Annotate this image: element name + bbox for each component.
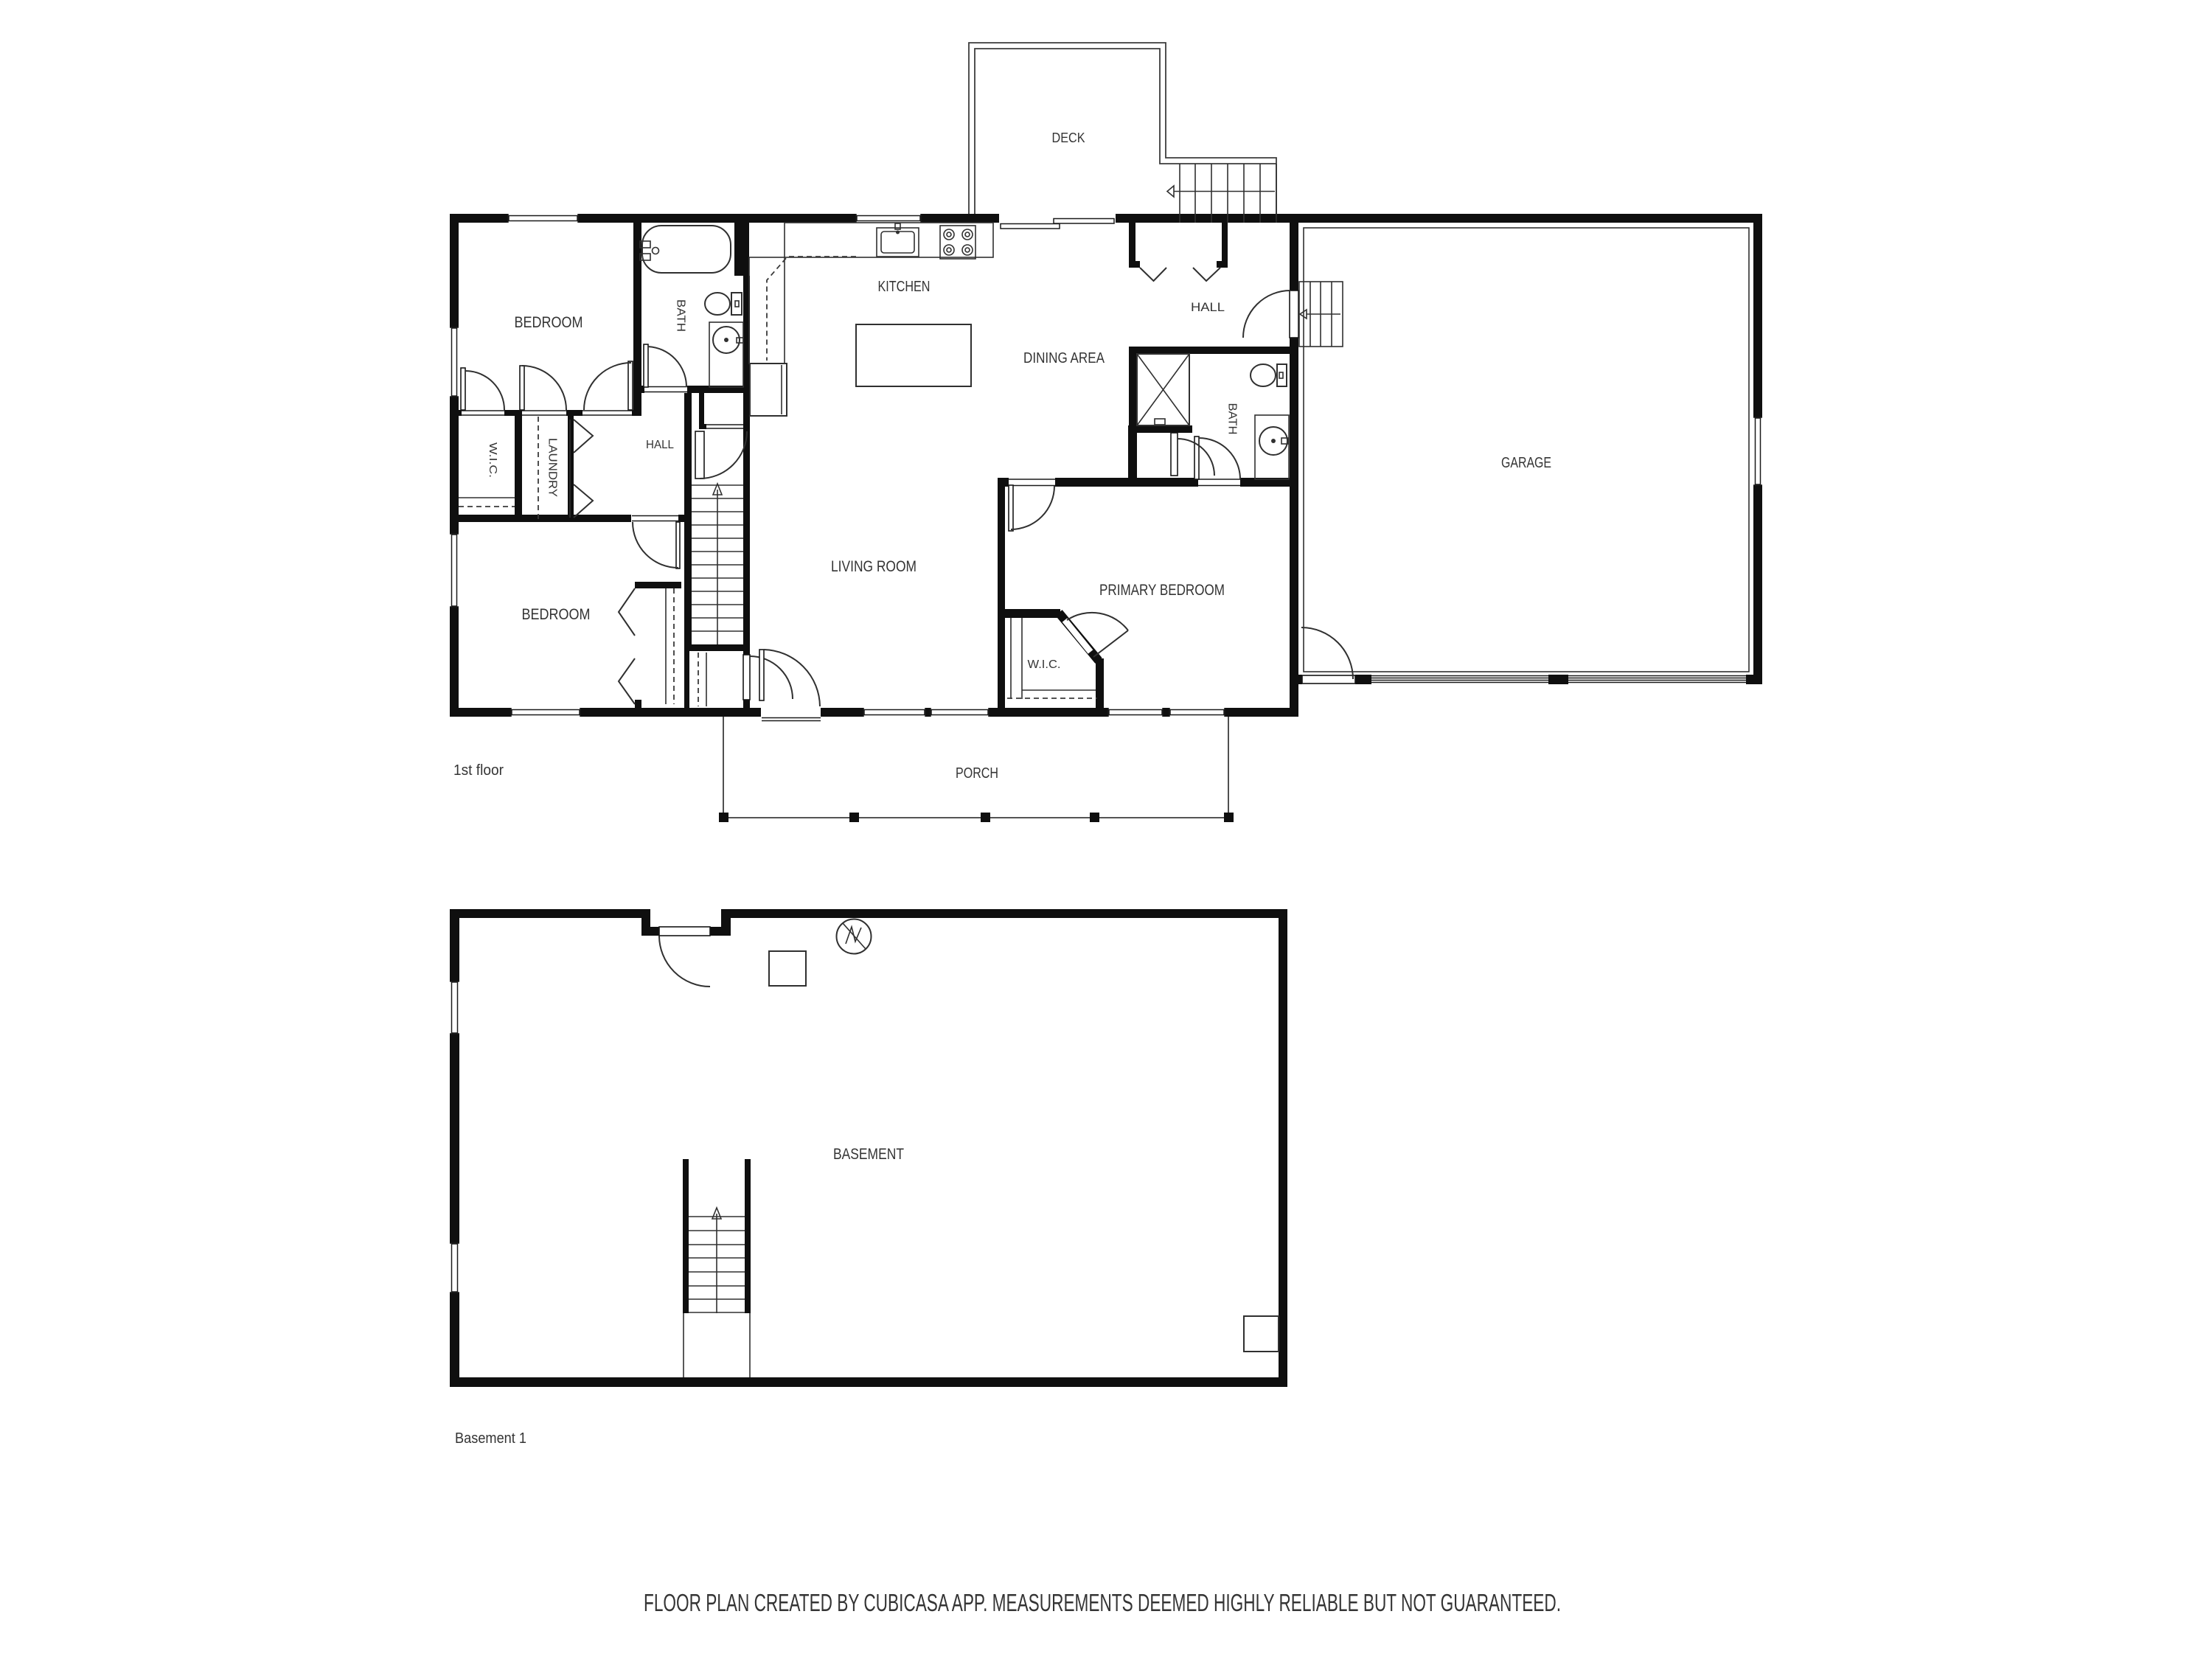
svg-text:BATH: BATH bbox=[1226, 403, 1239, 435]
svg-text:PORCH: PORCH bbox=[956, 765, 998, 782]
svg-text:HALL: HALL bbox=[646, 439, 674, 451]
svg-text:HALL: HALL bbox=[1191, 300, 1225, 314]
svg-text:DECK: DECK bbox=[1052, 131, 1085, 145]
svg-text:LAUNDRY: LAUNDRY bbox=[546, 438, 559, 497]
svg-text:Basement 1: Basement 1 bbox=[455, 1430, 526, 1447]
svg-text:GARAGE: GARAGE bbox=[1501, 455, 1551, 471]
svg-text:BEDROOM: BEDROOM bbox=[522, 606, 591, 623]
svg-text:1st floor: 1st floor bbox=[453, 762, 504, 779]
svg-text:W.I.C.: W.I.C. bbox=[487, 442, 499, 478]
svg-text:W.I.C.: W.I.C. bbox=[1028, 658, 1061, 671]
svg-text:FLOOR PLAN CREATED BY CUBICASA: FLOOR PLAN CREATED BY CUBICASA APP. MEAS… bbox=[644, 1589, 1561, 1616]
svg-text:BATH: BATH bbox=[675, 299, 687, 332]
svg-text:DINING AREA: DINING AREA bbox=[1023, 350, 1105, 366]
svg-text:BASEMENT: BASEMENT bbox=[833, 1146, 904, 1163]
svg-text:KITCHEN: KITCHEN bbox=[878, 279, 931, 295]
svg-text:PRIMARY BEDROOM: PRIMARY BEDROOM bbox=[1099, 582, 1225, 599]
svg-text:LIVING ROOM: LIVING ROOM bbox=[831, 558, 917, 575]
svg-text:BEDROOM: BEDROOM bbox=[515, 314, 583, 331]
